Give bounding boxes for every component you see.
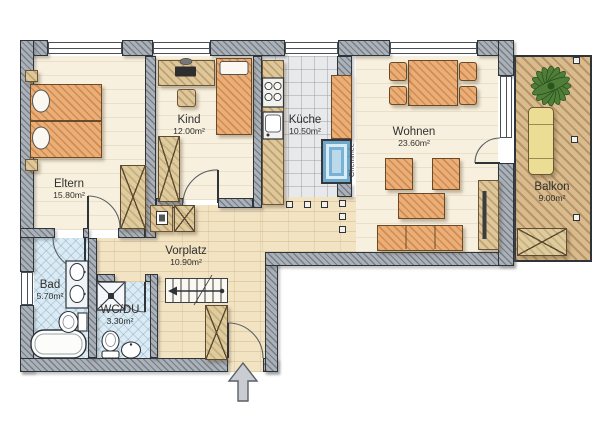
bed-pillows bbox=[33, 62, 249, 150]
toilet-bad bbox=[59, 312, 87, 333]
toilet-wcdu bbox=[102, 331, 119, 358]
tv-on-sideboard bbox=[483, 191, 487, 239]
label-eltern: Eltern 15.80m² bbox=[38, 178, 100, 201]
room-name: Kind bbox=[163, 114, 215, 127]
appliance-detail bbox=[157, 212, 168, 225]
sofa-seat-lines bbox=[406, 226, 435, 249]
bathtub bbox=[31, 330, 86, 358]
room-area: 15.80m² bbox=[38, 191, 100, 201]
washbasin-wcdu bbox=[122, 342, 141, 358]
room-name: Balkon bbox=[522, 181, 582, 194]
desk-items bbox=[175, 58, 196, 76]
room-name: Vorplatz bbox=[152, 245, 220, 258]
label-cheminee: Cheminée bbox=[347, 132, 357, 188]
room-name: Küche bbox=[276, 114, 334, 127]
label-kueche: Küche 10.50m² bbox=[276, 114, 334, 137]
entrance-arrow-icon bbox=[229, 363, 257, 401]
room-name: Eltern bbox=[38, 178, 100, 191]
label-vorplatz: Vorplatz 10.90m² bbox=[152, 245, 220, 268]
room-name: WC/DU bbox=[94, 304, 146, 317]
room-area: 10.50m² bbox=[276, 127, 334, 137]
plan-overlay bbox=[0, 0, 600, 423]
room-area: 10.90m² bbox=[152, 258, 220, 268]
plant bbox=[531, 66, 572, 107]
room-name: Wohnen bbox=[383, 126, 445, 139]
label-wohnen: Wohnen 23.60m² bbox=[383, 126, 445, 149]
room-area: 12.00m² bbox=[163, 127, 215, 137]
door-leaves bbox=[85, 163, 500, 358]
label-balkon: Balkon 9.00m² bbox=[522, 181, 582, 204]
room-area: 23.60m² bbox=[383, 139, 445, 149]
stairs-detail bbox=[168, 275, 224, 305]
label-wcdu: WC/DU 3.30m² bbox=[94, 304, 146, 327]
room-area: 9.00m² bbox=[522, 194, 582, 204]
room-name: Bad bbox=[28, 279, 72, 292]
label-bad: Bad 5.70m² bbox=[28, 279, 72, 302]
room-area: 3.30m² bbox=[94, 317, 146, 327]
stove bbox=[263, 78, 284, 107]
label-kind: Kind 12.00m² bbox=[163, 114, 215, 137]
room-area: 5.70m² bbox=[28, 292, 72, 302]
floor-plan: Eltern 15.80m² Kind 12.00m² Küche 10.50m… bbox=[0, 0, 600, 423]
